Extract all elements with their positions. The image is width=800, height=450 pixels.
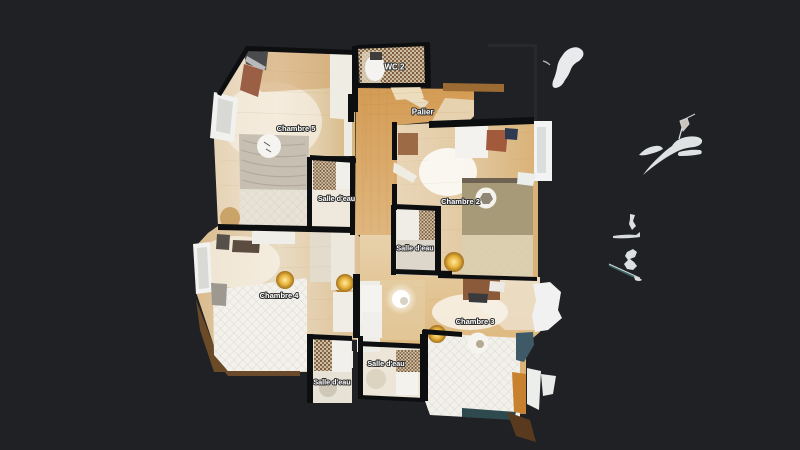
svg-text:Chambre 3: Chambre 3 bbox=[456, 317, 495, 326]
svg-text:Palier: Palier bbox=[412, 108, 434, 117]
svg-text:Chambre 4: Chambre 4 bbox=[260, 291, 300, 300]
svg-text:Salle d'eau: Salle d'eau bbox=[396, 244, 433, 253]
svg-text:Salle d'eau: Salle d'eau bbox=[313, 378, 350, 387]
svg-text:WC 2: WC 2 bbox=[385, 63, 406, 72]
svg-text:Salle d'eau: Salle d'eau bbox=[367, 359, 404, 368]
svg-text:Chambre 5: Chambre 5 bbox=[277, 124, 316, 133]
svg-text:Chambre 2: Chambre 2 bbox=[441, 197, 480, 206]
svg-text:Salle d'eau: Salle d'eau bbox=[318, 194, 355, 203]
